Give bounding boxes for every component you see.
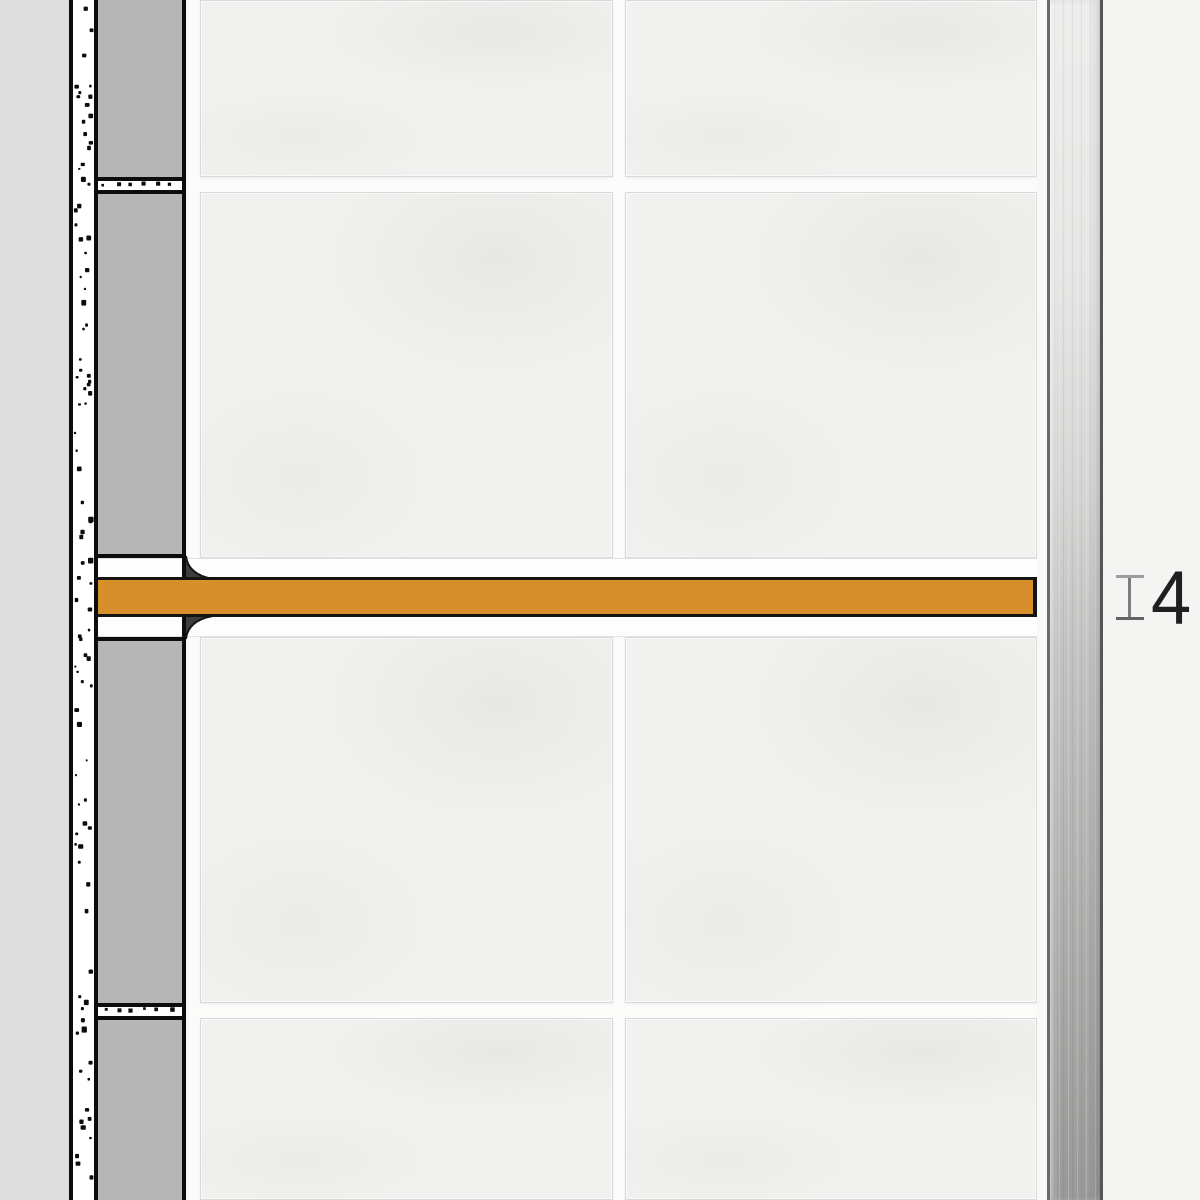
mortar-layer — [69, 0, 98, 1200]
mortar-stipple-texture — [73, 0, 94, 1200]
wall-tile — [625, 637, 1037, 1003]
adhesive-fillet-lower — [186, 616, 213, 639]
wall-tile — [625, 1018, 1037, 1200]
wall-tile — [200, 637, 613, 1003]
tile-section-segment — [98, 0, 182, 181]
shelf-joint-band-upper — [98, 558, 1037, 577]
tile-section-segment — [98, 1016, 182, 1200]
metal-edge-profile — [1047, 0, 1103, 1200]
shelf-profile-bar — [98, 577, 1037, 617]
wall-tile — [625, 192, 1037, 558]
adhesive-fillet-upper — [186, 556, 213, 579]
mortar-joint-texture — [98, 1007, 182, 1016]
mortar-joint-texture — [98, 181, 182, 190]
shelf-joint-band-lower — [98, 617, 1037, 637]
profile-installation-diagram: 4 — [0, 0, 1200, 1200]
tile-section-segment — [98, 190, 182, 558]
wall-substrate — [0, 0, 69, 1200]
dimension-label: 4 — [1151, 561, 1190, 637]
wall-tile — [625, 0, 1037, 177]
wall-tile — [200, 192, 613, 558]
edge-grout-gap — [1037, 0, 1047, 1200]
wall-tile — [200, 0, 613, 177]
dimension-extent-icon — [1116, 575, 1144, 620]
tile-section-segment — [98, 637, 182, 1007]
wall-tile — [200, 1018, 613, 1200]
